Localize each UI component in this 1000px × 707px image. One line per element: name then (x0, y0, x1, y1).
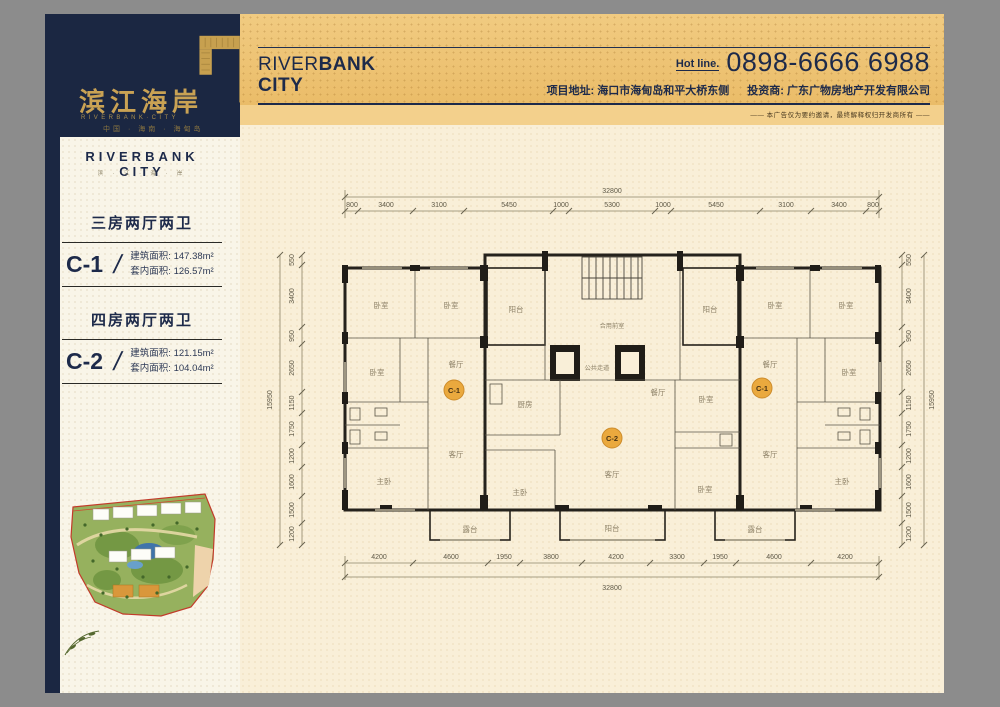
svg-text:客厅: 客厅 (763, 449, 778, 459)
svg-text:C-1: C-1 (756, 384, 768, 393)
svg-text:客厅: 客厅 (449, 449, 464, 459)
stairs-icon (582, 257, 642, 299)
svg-text:1000: 1000 (655, 202, 671, 209)
dim-total-height-right: 15950 (929, 390, 936, 410)
svg-text:1600: 1600 (289, 474, 296, 490)
svg-text:550: 550 (289, 254, 296, 266)
svg-text:公共走道: 公共走道 (585, 364, 610, 372)
svg-text:卧室: 卧室 (699, 394, 714, 404)
unit-badge-c1-left: C-1 (444, 380, 464, 400)
logo-chinese-name: 滨江海岸 (79, 82, 203, 119)
svg-text:露台: 露台 (748, 524, 763, 534)
svg-text:主卧: 主卧 (377, 476, 392, 486)
unit-c2-box: C-2 / 建筑面积: 121.15m² 套内面积: 104.04m² (62, 339, 222, 384)
c2-build-label: 建筑面积: (130, 348, 171, 359)
unit-badge-c2: C-2 (602, 428, 622, 448)
logo-block: 滨江海岸 RIVERBANK·CITY 中国 · 海南 · 海甸岛 (45, 14, 240, 137)
svg-text:1200: 1200 (906, 526, 913, 542)
unit-c2-areas: 建筑面积: 121.15m² 套内面积: 104.04m² (130, 347, 213, 376)
c1-inner-label: 套内面积: (130, 266, 171, 277)
left-info-column: RIVERBANK CITY 滨 · 江 · 海 · 岸 三房两厅两卫 C-1 … (60, 137, 240, 693)
dim-left: 550 3400 950 2650 1150 1750 1200 1600 15… (267, 252, 305, 548)
dim-bottom: 4200 4600 1950 3800 4200 3300 1950 4600 … (342, 554, 882, 592)
top-banner: RIVERBANK CITY Hot line. 0898-6666 6988 … (240, 14, 944, 125)
svg-text:1150: 1150 (289, 395, 296, 410)
svg-text:3400: 3400 (378, 202, 394, 209)
c1-build-area: 147.38m² (174, 251, 214, 262)
svg-text:550: 550 (906, 254, 913, 266)
dim-total-width-top: 32800 (602, 188, 622, 195)
hotline-label: Hot line. (676, 58, 719, 71)
svg-text:4600: 4600 (766, 554, 782, 561)
svg-text:卧室: 卧室 (370, 367, 385, 377)
site-plaza (193, 545, 213, 597)
svg-text:1950: 1950 (712, 554, 728, 561)
disclaimer-text: —— 本广告仅为要约邀请，最终解释权归开发商所有 —— (750, 109, 930, 119)
svg-text:卧室: 卧室 (839, 300, 854, 310)
leaf-sketch-icon (65, 631, 99, 655)
unit-c1-areas: 建筑面积: 147.38m² 套内面积: 126.57m² (130, 250, 213, 279)
svg-text:1750: 1750 (289, 421, 296, 437)
svg-text:3100: 3100 (778, 202, 794, 209)
svg-text:卧室: 卧室 (842, 367, 857, 377)
c2-inner-label: 套内面积: (130, 363, 171, 374)
room-labels: 卧室 卧室 卧室 主卧 餐厅 客厅 露台 阳台 阳台 合用前室 公共走道 厨房 … (370, 300, 857, 534)
c2-build-area: 121.15m² (174, 348, 214, 359)
svg-text:C-2: C-2 (606, 434, 618, 443)
svg-text:4200: 4200 (837, 554, 853, 561)
svg-text:餐厅: 餐厅 (449, 360, 464, 369)
hotline-number: 0898-6666 6988 (726, 47, 930, 78)
banner-rule-bottom (258, 103, 930, 105)
svg-text:1600: 1600 (906, 474, 913, 490)
unit-c1-section: 三房两厅两卫 C-1 / 建筑面积: 147.38m² 套内面积: 126.57… (62, 212, 222, 287)
banner-brand: RIVERBANK CITY (258, 54, 375, 96)
unit-c2-type: 四房两厅两卫 (62, 309, 222, 330)
svg-text:2650: 2650 (906, 360, 913, 376)
c2-inner-area: 104.04m² (174, 363, 214, 374)
svg-text:1750: 1750 (906, 421, 913, 437)
svg-text:餐厅: 餐厅 (651, 388, 666, 397)
svg-text:1200: 1200 (289, 526, 296, 542)
hotline: Hot line. 0898-6666 6988 (676, 47, 930, 78)
slash-divider: / (111, 346, 125, 377)
unit-c1-box: C-1 / 建筑面积: 147.38m² 套内面积: 126.57m² (62, 242, 222, 287)
unit-c1-type: 三房两厅两卫 (62, 212, 222, 233)
floor-plan: 32800 800 3400 3100 5450 1000 5300 1000 … (250, 140, 950, 615)
svg-text:C-1: C-1 (448, 386, 460, 395)
svg-text:5450: 5450 (708, 202, 724, 209)
svg-text:3400: 3400 (906, 288, 913, 304)
svg-text:餐厅: 餐厅 (763, 360, 778, 369)
unit-badge-c1-right: C-1 (752, 378, 772, 398)
project-address: 项目地址: 海口市海甸岛和平大桥东侧 (547, 82, 730, 98)
sidebar-subtitle: 滨 · 江 · 海 · 岸 (60, 169, 224, 177)
svg-text:5300: 5300 (604, 202, 620, 209)
site-master-plan (57, 485, 235, 667)
svg-text:800: 800 (346, 202, 358, 209)
svg-text:卧室: 卧室 (444, 300, 459, 310)
svg-text:客厅: 客厅 (605, 469, 620, 479)
elevator-icon (550, 345, 645, 381)
svg-text:主卧: 主卧 (513, 487, 528, 497)
svg-text:卧室: 卧室 (698, 484, 713, 494)
logo-english-name: RIVERBANK·CITY (81, 115, 179, 121)
svg-text:1150: 1150 (906, 395, 913, 410)
brand-bank: BANK (319, 54, 376, 75)
svg-text:3400: 3400 (289, 288, 296, 304)
logo-subtitle: 中国 · 海南 · 海甸岛 (103, 124, 203, 134)
c1-inner-area: 126.57m² (174, 266, 214, 277)
c1-build-label: 建筑面积: (130, 251, 171, 262)
svg-text:阳台: 阳台 (509, 304, 524, 314)
svg-text:950: 950 (289, 330, 296, 342)
svg-text:3400: 3400 (831, 202, 847, 209)
svg-text:露台: 露台 (463, 524, 478, 534)
svg-text:3300: 3300 (669, 554, 685, 561)
svg-text:2650: 2650 (289, 360, 296, 376)
unit-c2-code: C-2 (66, 348, 103, 375)
brand-city: CITY (258, 75, 303, 96)
svg-text:1500: 1500 (289, 502, 296, 518)
svg-text:阳台: 阳台 (703, 304, 718, 314)
brand-river: RIVER (258, 54, 319, 75)
dim-total-height-left: 15950 (267, 390, 274, 410)
project-investor: 投资商: 广东广物房地产开发有限公司 (747, 82, 930, 98)
project-info-row: 项目地址: 海口市海甸岛和平大桥东侧 投资商: 广东广物房地产开发有限公司 (547, 82, 930, 98)
svg-text:阳台: 阳台 (605, 523, 620, 533)
svg-text:1500: 1500 (906, 502, 913, 518)
unit-c1-code: C-1 (66, 251, 103, 278)
slash-divider: / (111, 249, 125, 280)
svg-text:5450: 5450 (501, 202, 517, 209)
windows (345, 268, 880, 540)
svg-text:4200: 4200 (371, 554, 387, 561)
svg-text:1200: 1200 (289, 448, 296, 464)
svg-text:800: 800 (867, 202, 879, 209)
svg-text:卧室: 卧室 (768, 300, 783, 310)
svg-text:4200: 4200 (608, 554, 624, 561)
svg-text:1000: 1000 (553, 202, 569, 209)
svg-text:厨房: 厨房 (518, 399, 533, 409)
unit-c2-section: 四房两厅两卫 C-2 / 建筑面积: 121.15m² 套内面积: 104.04… (62, 309, 222, 384)
svg-text:3800: 3800 (543, 554, 559, 561)
dim-right: 550 3400 950 2650 1150 1750 1200 1600 15… (899, 252, 936, 548)
dim-total-width-bottom: 32800 (602, 585, 622, 592)
svg-text:卧室: 卧室 (374, 300, 389, 310)
svg-text:主卧: 主卧 (835, 476, 850, 486)
svg-text:1200: 1200 (906, 448, 913, 464)
svg-text:合用前室: 合用前室 (600, 322, 625, 330)
svg-text:950: 950 (906, 330, 913, 342)
svg-text:4600: 4600 (443, 554, 459, 561)
svg-text:3100: 3100 (431, 202, 447, 209)
dim-top: 32800 800 3400 3100 5450 1000 5300 1000 … (342, 188, 882, 218)
svg-text:1950: 1950 (496, 554, 512, 561)
